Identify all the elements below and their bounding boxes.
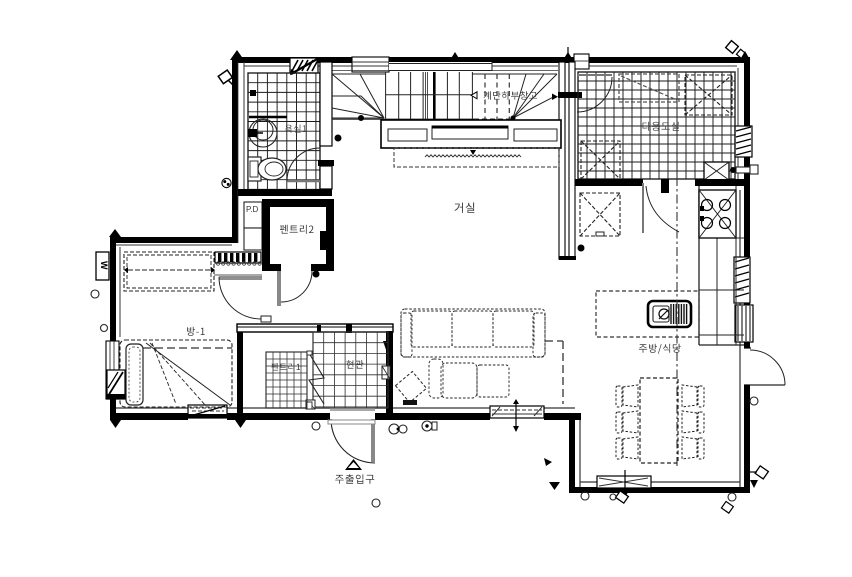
svg-text:P.D: P.D bbox=[246, 205, 259, 214]
svg-text:W: W bbox=[99, 261, 109, 270]
